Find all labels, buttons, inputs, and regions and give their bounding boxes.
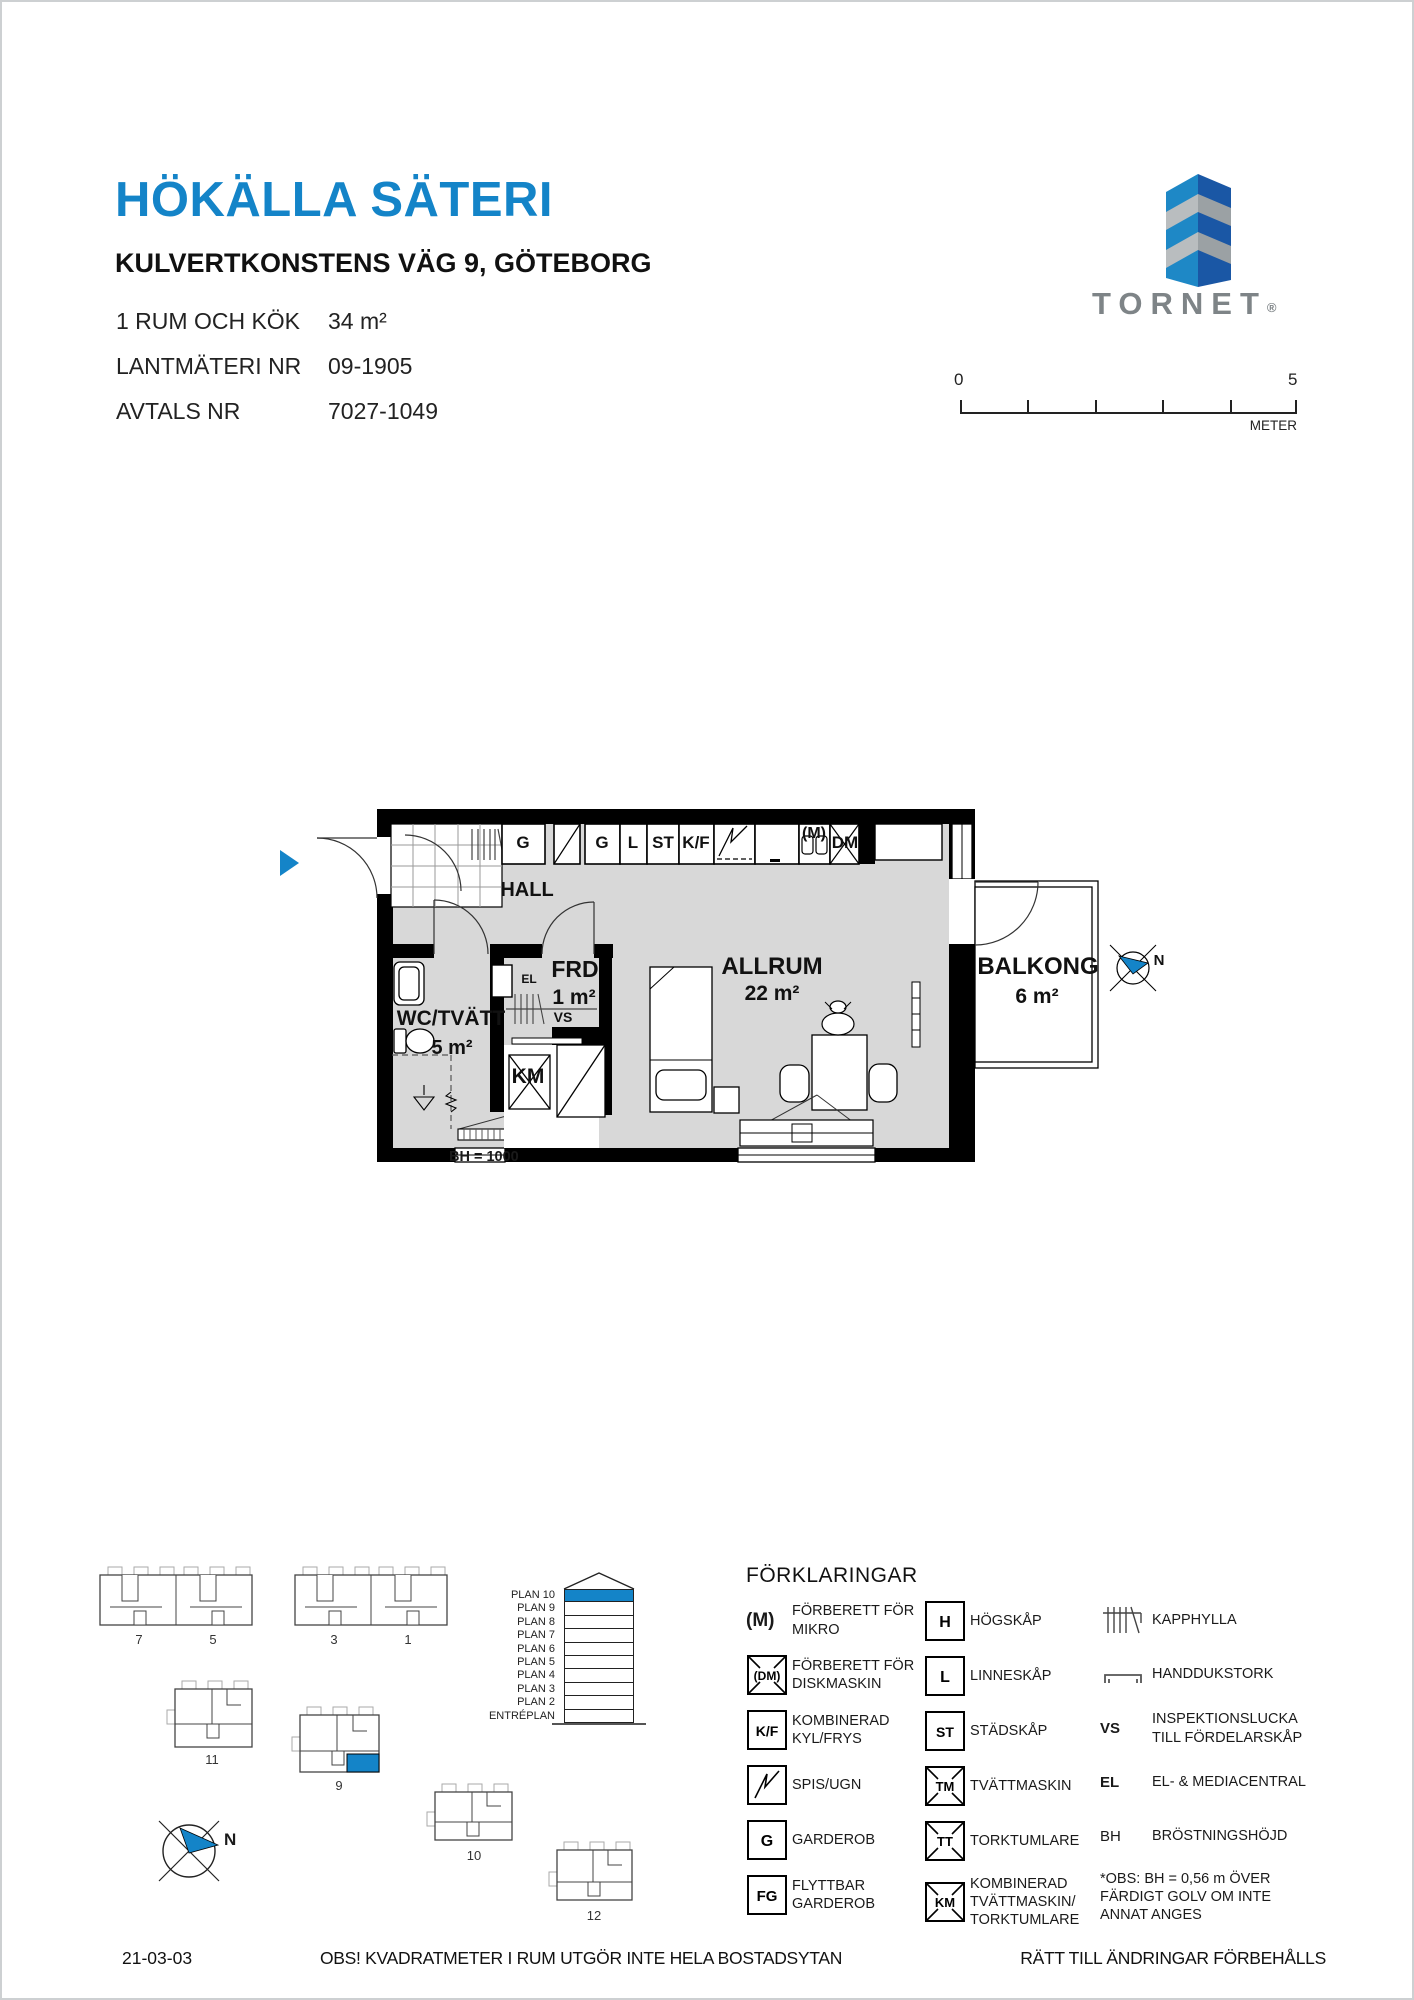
- legend-row-tvattmaskin: TM TVÄTTMASKIN: [924, 1765, 1100, 1807]
- level-label: PLAN 9: [425, 1602, 555, 1615]
- counter-handle: [770, 859, 780, 862]
- toilet-icon: [394, 1029, 434, 1053]
- footer-rights: RÄTT TILL ÄNDRINGAR FÖRBEHÅLLS: [1020, 1948, 1326, 1969]
- plan-north-label: N: [1154, 953, 1165, 968]
- address-subtitle: KULVERTKONSTENS VÄG 9, GÖTEBORG: [115, 248, 652, 279]
- svg-text:G: G: [761, 1833, 773, 1850]
- room-area-balkong: 6 m²: [1015, 986, 1058, 1007]
- cabinet-label-l: L: [628, 834, 638, 851]
- footer-date: 21-03-03: [122, 1948, 192, 1969]
- svg-text:TT: TT: [937, 1834, 953, 1849]
- building-label-3: 3: [330, 1632, 337, 1647]
- svg-text:H: H: [939, 1614, 951, 1631]
- avtals-value: 7027-1049: [328, 398, 438, 425]
- level-label: ENTRÉPLAN: [425, 1710, 555, 1723]
- washbasin-icon: [394, 962, 424, 1005]
- level-cell-highlighted: [564, 1589, 634, 1602]
- level-label: PLAN 4: [425, 1669, 555, 1682]
- building-label-1: 1: [404, 1632, 411, 1647]
- level-label: PLAN 6: [425, 1643, 555, 1656]
- coat-rack-symbol: [1100, 1603, 1146, 1639]
- building-12: [557, 1850, 632, 1900]
- registered-mark: ®: [1267, 300, 1277, 315]
- legend-column-2: H HÖGSKÅP L LINNESKÅP ST STÄDSKÅP: [924, 1600, 1100, 1942]
- svg-text:(DM): (DM): [754, 1669, 781, 1683]
- legend-row-vs: VS INSPEKTIONSLUCKA TILL FÖRDELARSKÅP: [1100, 1708, 1320, 1749]
- vs-marking: VS: [554, 1010, 573, 1024]
- building-label-7: 7: [135, 1632, 142, 1647]
- room-area-allrum: 22 m²: [745, 983, 800, 1004]
- roof-outline: [562, 1570, 636, 1590]
- apartment-area-value: 34 m²: [328, 308, 387, 335]
- legend-column-1: (M) FÖRBERETT FÖR MIKRO (DM) FÖRBERETT F…: [746, 1600, 930, 1929]
- el-symbol: EL: [1100, 1774, 1152, 1791]
- legend-row-el: EL EL- & MEDIACENTRAL: [1100, 1762, 1320, 1803]
- svg-text:KM: KM: [935, 1895, 955, 1910]
- tall-cabinet-icon: [557, 1045, 605, 1117]
- legend-row-diskmaskin: (DM) FÖRBERETT FÖR DISKMASKIN: [746, 1654, 930, 1696]
- legend-row-kapphylla: KAPPHYLLA: [1100, 1600, 1320, 1641]
- footer-note: OBS! KVADRATMETER I RUM UTGÖR INTE HELA …: [320, 1948, 842, 1969]
- h-symbol: H: [924, 1600, 966, 1642]
- svg-text:L: L: [940, 1669, 950, 1686]
- legend-row-stadskap: ST STÄDSKÅP: [924, 1710, 1100, 1752]
- scale-start-label: 0: [954, 370, 963, 390]
- radiator-icon: [912, 982, 920, 1047]
- svg-text:K/F: K/F: [756, 1723, 779, 1739]
- building-label-9: 9: [335, 1778, 342, 1793]
- vs-symbol: VS: [1100, 1720, 1152, 1737]
- legend-row-hogskap: H HÖGSKÅP: [924, 1600, 1100, 1642]
- legend-row-bh: BH BRÖSTNINGSHÖJD: [1100, 1816, 1320, 1857]
- level-label: PLAN 8: [425, 1616, 555, 1629]
- scale-unit-label: METER: [960, 418, 1297, 433]
- scale-bar: [960, 400, 1297, 414]
- cabinet-label-dm: DM: [832, 834, 858, 851]
- svg-text:ST: ST: [936, 1724, 954, 1740]
- tm-symbol: TM: [924, 1765, 966, 1807]
- floor-level-labels: PLAN 10 PLAN 9 PLAN 8 PLAN 7 PLAN 6 PLAN…: [425, 1589, 555, 1723]
- level-label: PLAN 3: [425, 1683, 555, 1696]
- plan-compass-icon: [1110, 945, 1156, 991]
- legend-row-torktumlare: TT TORKTUMLARE: [924, 1820, 1100, 1862]
- building-label-11: 11: [205, 1752, 219, 1767]
- kf-symbol: K/F: [746, 1709, 788, 1751]
- lantmateri-value: 09-1905: [328, 353, 412, 380]
- dm-symbol: (DM): [746, 1654, 788, 1696]
- m-symbol: (M): [746, 1610, 792, 1632]
- lantmateri-label: LANTMÄTERI NR: [116, 353, 301, 380]
- avtals-label: AVTALS NR: [116, 398, 240, 425]
- room-label-allrum: ALLRUM: [721, 955, 822, 979]
- level-label: PLAN 7: [425, 1629, 555, 1642]
- legend-row-mikro: (M) FÖRBERETT FÖR MIKRO: [746, 1600, 930, 1641]
- cabinet-label-g1: G: [516, 834, 529, 851]
- legend-row-garderob: G GARDEROB: [746, 1819, 930, 1861]
- bh-symbol: BH: [1100, 1828, 1152, 1845]
- floor-level-stack: [564, 1589, 634, 1723]
- chair-left-icon: [780, 1065, 809, 1102]
- legend-column-3: KAPPHYLLA HANDDUKSTORK VS INSPEKTIONSLUC…: [1100, 1600, 1320, 1937]
- entry-arrow-icon: [280, 850, 299, 876]
- el-marking: EL: [521, 973, 536, 985]
- hall-tiles: [391, 824, 502, 907]
- building-label-10: 10: [467, 1848, 481, 1863]
- building-11: [175, 1689, 252, 1747]
- building-label-5: 5: [209, 1632, 216, 1647]
- svg-text:TM: TM: [936, 1779, 955, 1794]
- cabinet-label-g2: G: [595, 834, 608, 851]
- apartment-type-label: 1 RUM OCH KÖK: [116, 308, 300, 335]
- page-title: HÖKÄLLA SÄTERI: [115, 172, 553, 228]
- g-symbol: G: [746, 1819, 788, 1861]
- building-label-12: 12: [587, 1908, 601, 1923]
- cabinet-label-kf: K/F: [682, 834, 709, 851]
- building-10: [435, 1792, 512, 1840]
- table-icon: [812, 1035, 867, 1110]
- l-symbol: L: [924, 1655, 966, 1697]
- km-symbol: KM: [924, 1881, 966, 1923]
- room-label-hall: HALL: [500, 880, 553, 900]
- allrum-window: [738, 1120, 875, 1162]
- brand-wordmark: TORNET®: [1092, 286, 1276, 322]
- cabinet-label-st: ST: [652, 834, 674, 851]
- building-7-5: [100, 1575, 252, 1625]
- svg-text:FG: FG: [757, 1888, 778, 1905]
- room-label-km: KM: [512, 1066, 545, 1087]
- site-north-label: N: [224, 1830, 236, 1850]
- legend-row-linneskap: L LINNESKÅP: [924, 1655, 1100, 1697]
- fg-symbol: FG: [746, 1874, 788, 1916]
- floorplan-document-page: HÖKÄLLA SÄTERI KULVERTKONSTENS VÄG 9, GÖ…: [0, 0, 1414, 2000]
- level-label: PLAN 10: [425, 1589, 555, 1602]
- bh-note: BH = 1000: [449, 1149, 519, 1165]
- room-label-frd: FRD: [551, 958, 598, 981]
- room-area-wc: 5 m²: [431, 1038, 472, 1058]
- level-label: PLAN 2: [425, 1696, 555, 1709]
- brand-name: TORNET: [1092, 286, 1267, 321]
- cabinet-label-m: (M): [802, 826, 826, 842]
- floor-plan-drawing: [262, 802, 1202, 1182]
- scale-end-label: 5: [1288, 370, 1297, 390]
- room-label-balkong: BALKONG: [977, 955, 1098, 979]
- highlighted-unit: [347, 1754, 379, 1772]
- allrum-right-window: [952, 824, 972, 879]
- room-label-wc: WC/TVÄTT: [397, 1008, 505, 1029]
- shaft-notch: [875, 824, 942, 860]
- tt-symbol: TT: [924, 1820, 966, 1862]
- vs-hatch: [512, 1038, 582, 1044]
- chair-right-icon: [869, 1064, 897, 1102]
- ground-line: [552, 1723, 646, 1725]
- stove-symbol: [746, 1764, 788, 1806]
- legend-row-spis: SPIS/UGN: [746, 1764, 930, 1806]
- legend-row-obs-note: *OBS: BH = 0,56 m ÖVER FÄRDIGT GOLV OM I…: [1100, 1870, 1320, 1924]
- level-label: PLAN 5: [425, 1656, 555, 1669]
- legend-row-kombimaskin: KM KOMBINERAD TVÄTTMASKIN/ TORKTUMLARE: [924, 1875, 1100, 1929]
- building-9: [300, 1715, 379, 1772]
- towel-dryer-symbol: [1100, 1663, 1146, 1687]
- legend-row-flyttbar-garderob: FG FLYTTBAR GARDEROB: [746, 1874, 930, 1916]
- legend-row-handdukstork: HANDDUKSTORK: [1100, 1654, 1320, 1695]
- electrical-cabinet: [492, 965, 512, 997]
- legend-row-kylfrys: K/F KOMBINERAD KYL/FRYS: [746, 1709, 930, 1751]
- tornet-tower-icon: [1158, 162, 1238, 287]
- legend-title: FÖRKLARINGAR: [746, 1564, 918, 1588]
- site-compass-icon: [159, 1821, 219, 1881]
- room-area-frd: 1 m²: [552, 987, 595, 1008]
- st-symbol: ST: [924, 1710, 966, 1752]
